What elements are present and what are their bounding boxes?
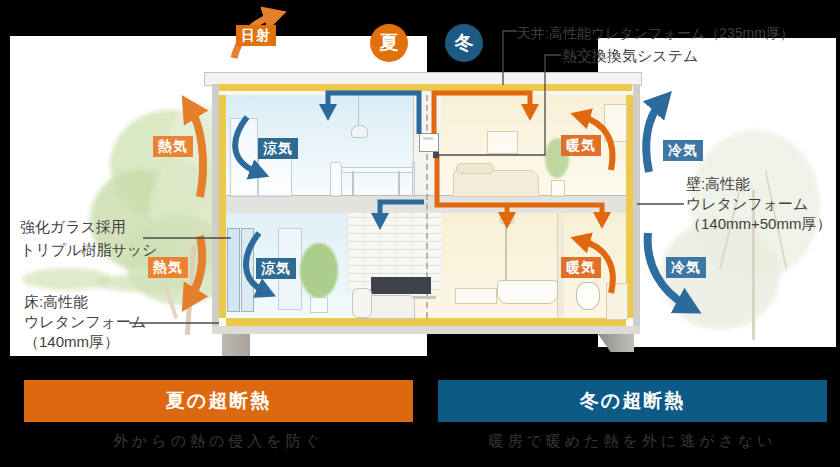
hot-air-arrow-down <box>191 236 202 297</box>
solar-radiation-label: 日射 <box>236 25 276 46</box>
insulation-diagram: 日射 夏 冬 熱気 熱気 涼気 涼気 暖気 暖気 冷気 冷気 天井:高性能ウレタ… <box>0 0 840 467</box>
summer-banner: 夏の超断熱 <box>24 380 413 422</box>
summer-badge: 夏 <box>370 24 408 62</box>
cool-air-duct-lower <box>380 202 424 219</box>
warm-air-label-upper: 暖気 <box>561 135 601 156</box>
warm-air-duct-lower <box>437 155 602 218</box>
winter-badge: 冬 <box>445 24 483 62</box>
cold-air-label-upper: 冷気 <box>663 140 703 161</box>
cool-air-label-upper: 涼気 <box>258 138 298 159</box>
winter-caption: 暖房で暖めた熱を外に逃がさない <box>438 432 827 451</box>
leader-end-dot <box>433 152 439 158</box>
floor-annotation: 床:高性能 ウレタンフォーム （140mm厚） <box>24 292 146 352</box>
warm-air-duct-upper <box>434 93 530 134</box>
winter-banner: 冬の超断熱 <box>438 380 827 422</box>
cool-air-label-lower: 涼気 <box>256 258 296 279</box>
cold-air-label-lower: 冷気 <box>666 257 706 278</box>
hot-air-label-upper: 熱気 <box>153 136 193 157</box>
summer-caption: 外からの熱の侵入を防ぐ <box>24 432 413 451</box>
wall-annotation: 壁:高性能 ウレタンフォーム （140mm+50mm厚） <box>686 174 831 234</box>
ceiling-annotation: 天井:高性能ウレタンフォーム（235mm厚） <box>517 23 794 43</box>
hot-air-label-lower: 熱気 <box>148 257 188 278</box>
window-annotation: 強化ガラス採用 トリプル樹脂サッシ <box>20 217 157 260</box>
annotation-leader-lines <box>129 31 684 323</box>
ventilation-annotation: 熱交換換気システム <box>562 46 698 66</box>
warm-air-label-lower: 暖気 <box>561 257 601 278</box>
cool-air-swirl-upper <box>235 117 257 172</box>
cool-air-duct-upper <box>328 93 419 134</box>
cold-air-arrow-up <box>646 104 660 172</box>
